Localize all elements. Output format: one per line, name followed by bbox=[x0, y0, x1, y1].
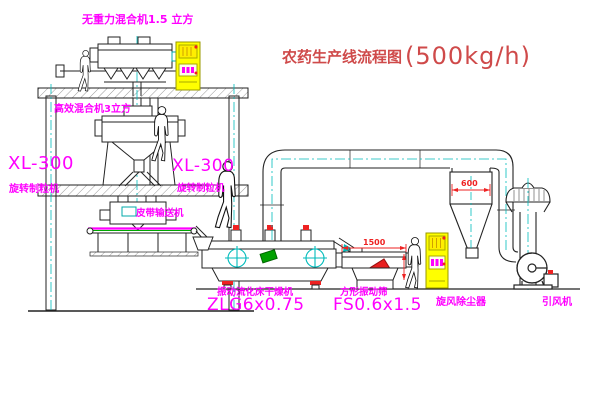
fluid-bed-dryer-drawing bbox=[193, 225, 359, 289]
label-high-efficiency-mixer: 高效混合机3立方 bbox=[54, 105, 131, 115]
title-text: 农药生产线流程图 bbox=[282, 46, 402, 70]
person-figure bbox=[78, 50, 90, 91]
label-granulator-right-model: XL-300 bbox=[172, 158, 234, 175]
label-granulator-left-model: XL-300 bbox=[8, 155, 74, 173]
control-cabinet-1 bbox=[176, 42, 200, 90]
cad-process-diagram-canvas: 农药生产线流程图 (500kg/h) 无重力混合机1.5 立方 高效混合机3立方… bbox=[0, 0, 600, 403]
label-cyclone: 旋风除尘器 bbox=[436, 298, 486, 308]
gravity-free-mixer-drawing bbox=[56, 37, 182, 96]
title-capacity: (500kg/h) bbox=[405, 42, 531, 70]
label-gravity-free-mixer: 无重力混合机1.5 立方 bbox=[82, 14, 193, 25]
square-sieve-drawing bbox=[336, 248, 418, 289]
label-granulator-left-name: 旋转制粒机 bbox=[9, 185, 59, 195]
belt-conveyor-drawing bbox=[87, 226, 208, 256]
label-sieve-model: FS0.6x1.5 bbox=[333, 297, 422, 314]
control-cabinet-2 bbox=[426, 233, 448, 288]
person-figure bbox=[406, 238, 421, 288]
diagram-title: 农药生产线流程图 (500kg/h) bbox=[282, 42, 531, 70]
dimension-sieve-length: 1500 bbox=[363, 239, 385, 247]
dimension-cyclone-width: 600 bbox=[461, 180, 478, 188]
label-belt-conveyor: 皮带输送机 bbox=[136, 209, 184, 219]
label-granulator-right-name: 旋转制粒机 bbox=[177, 184, 225, 194]
label-fan: 引风机 bbox=[542, 298, 572, 308]
label-dryer-model: ZLG6x0.75 bbox=[207, 297, 305, 314]
